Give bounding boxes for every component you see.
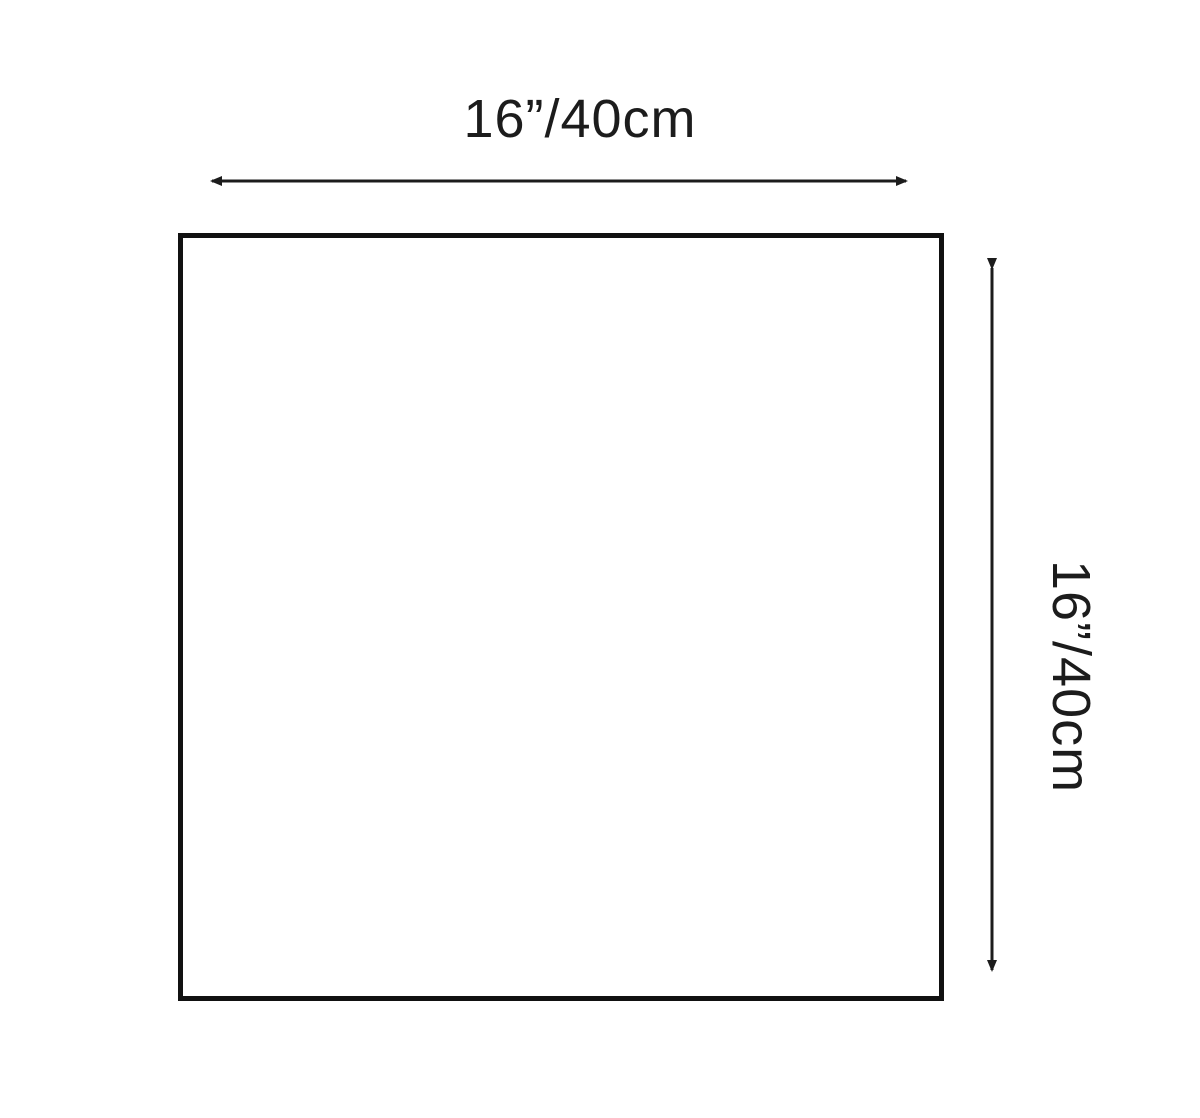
diagram-canvas: 16”/40cm 16”/40cm bbox=[0, 0, 1200, 1118]
height-dimension-label: 16”/40cm bbox=[1040, 552, 1102, 802]
width-dimension-label: 16”/40cm bbox=[0, 88, 1160, 150]
square-outline bbox=[178, 233, 944, 1001]
